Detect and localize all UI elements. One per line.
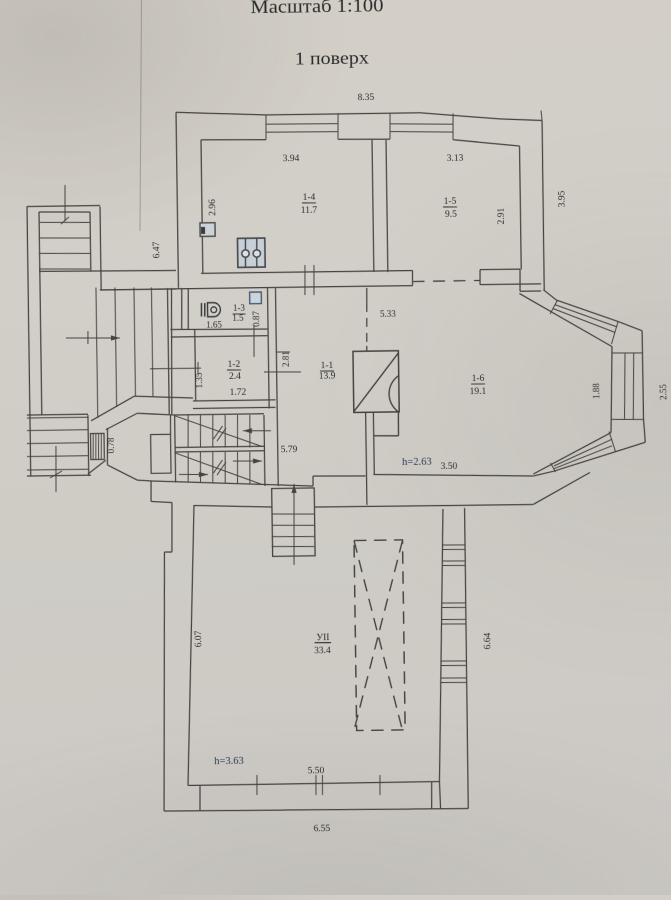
svg-text:9.5: 9.5	[445, 210, 457, 220]
svg-text:1.65: 1.65	[206, 319, 222, 329]
svg-text:6.55: 6.55	[314, 824, 331, 834]
svg-text:1-6: 1-6	[472, 374, 485, 384]
svg-text:1.72: 1.72	[230, 388, 247, 398]
svg-text:6.64: 6.64	[483, 632, 493, 649]
svg-text:1-1: 1-1	[321, 361, 334, 371]
svg-text:6.07: 6.07	[194, 630, 204, 647]
svg-text:2.91: 2.91	[497, 207, 507, 224]
svg-text:0.87: 0.87	[251, 311, 261, 327]
svg-text:5.33: 5.33	[380, 309, 396, 319]
svg-text:33.4: 33.4	[314, 646, 331, 656]
svg-text:2.55: 2.55	[658, 384, 668, 400]
svg-text:1 поверх: 1 поверх	[295, 47, 369, 68]
svg-text:5.79: 5.79	[281, 445, 298, 455]
svg-text:h=3.63: h=3.63	[214, 756, 244, 767]
svg-text:УІІ: УІІ	[316, 633, 329, 643]
svg-text:1.35: 1.35	[194, 372, 204, 388]
svg-text:3.50: 3.50	[441, 462, 458, 472]
svg-text:8.35: 8.35	[358, 93, 375, 103]
svg-text:3.13: 3.13	[447, 154, 464, 164]
svg-text:1.5: 1.5	[232, 313, 244, 323]
svg-text:6.47: 6.47	[152, 241, 162, 258]
svg-text:Масштаб 1:100: Масштаб 1:100	[250, 0, 383, 18]
svg-text:0.78: 0.78	[106, 437, 116, 453]
svg-text:h=2.63: h=2.63	[402, 457, 432, 468]
svg-text:3.95: 3.95	[557, 190, 567, 207]
svg-text:1-4: 1-4	[303, 193, 316, 203]
svg-text:2.81: 2.81	[281, 351, 291, 367]
svg-text:5.50: 5.50	[308, 766, 325, 776]
svg-text:1.88: 1.88	[591, 383, 601, 399]
svg-text:13.9: 13.9	[319, 371, 336, 381]
svg-text:1-3: 1-3	[233, 303, 246, 313]
svg-text:1-5: 1-5	[444, 197, 457, 207]
svg-text:11.7: 11.7	[301, 206, 318, 216]
svg-text:19.1: 19.1	[470, 387, 487, 397]
svg-text:2.96: 2.96	[208, 199, 218, 216]
svg-text:3.94: 3.94	[283, 154, 300, 164]
svg-text:1-2: 1-2	[228, 360, 241, 370]
svg-text:2.4: 2.4	[229, 372, 241, 382]
